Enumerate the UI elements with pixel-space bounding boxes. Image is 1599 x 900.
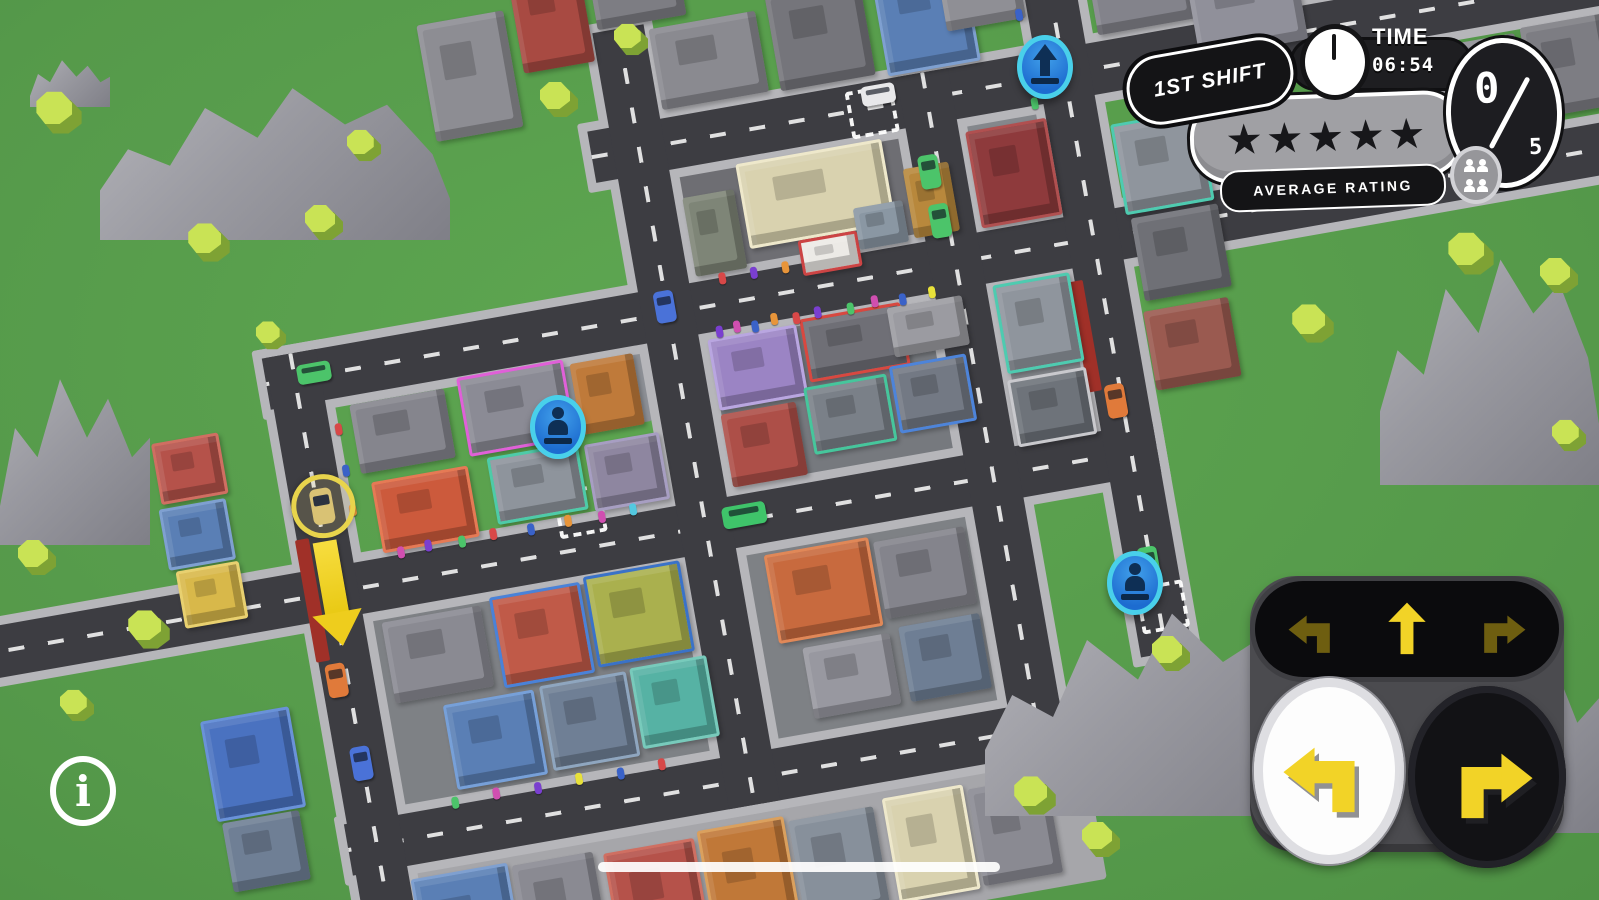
turn-right-button[interactable] [1408,686,1566,868]
marker-base [544,438,572,444]
average-rating-label: AVERAGE RATING [1219,163,1446,213]
building [853,200,910,250]
tree [1448,233,1494,274]
tree [1014,776,1056,813]
tree [36,92,82,133]
building [416,10,523,141]
time-label: TIME [1372,24,1429,50]
building [539,671,641,771]
marker-base [1121,594,1149,600]
straight-arrow-icon [1378,600,1436,658]
building [873,526,977,619]
passenger-icon [552,407,564,419]
tree [1552,420,1586,451]
building [788,806,890,900]
passenger-icon-body [548,420,568,435]
clock-icon [1300,24,1370,100]
tree [18,540,56,574]
tree [540,82,578,116]
building [158,498,236,571]
pedestrian [334,423,343,436]
time-value: 06:54 [1372,54,1434,76]
direction-indicator [1250,576,1564,682]
home-indicator [598,862,1000,872]
info-label: i [75,767,91,816]
turn-right-arrow-icon [1437,727,1537,827]
passenger-marker [530,395,586,459]
passenger-marker [1107,551,1163,615]
building [802,633,901,719]
building [720,402,808,488]
building [965,118,1063,229]
building [764,537,884,644]
tree [1540,258,1578,292]
counter-total: 5 [1529,135,1543,160]
building [803,373,898,455]
building [489,582,596,689]
tree [60,690,94,721]
building [583,560,695,668]
pedestrian [342,464,351,477]
building [505,0,595,74]
building [992,272,1084,374]
tree [1082,822,1120,856]
building [151,432,229,505]
turn-left-dim-icon [1286,600,1344,658]
tree [347,130,381,161]
tree [128,610,170,647]
counter-current: 0 [1473,63,1500,113]
building [629,655,720,749]
tree [305,205,343,239]
turn-right-dim-icon [1470,600,1528,658]
player-taxi-car [308,487,336,526]
marker-base [1031,78,1059,84]
building [1007,367,1098,448]
tree [188,223,230,260]
building [898,613,992,702]
tree [256,321,286,348]
info-button[interactable]: i [50,756,116,826]
passenger-icon-body [1125,576,1145,591]
passenger-icon [1129,563,1141,575]
building [707,324,808,411]
star-icons: ★★★★★ [1225,112,1430,161]
turn-left-arrow-icon [1279,721,1379,821]
tree [1292,304,1334,341]
arrow-up-icon [1040,58,1050,76]
building [381,605,494,703]
building [584,432,671,512]
tree [614,24,648,55]
game-viewport: ★★★★★ AVERAGE RATING 1ST SHIFT TIME 06:5… [0,0,1599,900]
building [349,388,456,474]
building [175,561,248,629]
building [222,810,311,892]
building [1143,297,1242,391]
building [443,689,549,790]
tree [1152,636,1190,670]
building [200,706,306,822]
turn-left-button[interactable] [1254,678,1404,864]
building [889,353,978,434]
passengers-icon [1450,146,1502,204]
building [1131,203,1232,301]
passenger-marker [1017,35,1073,99]
